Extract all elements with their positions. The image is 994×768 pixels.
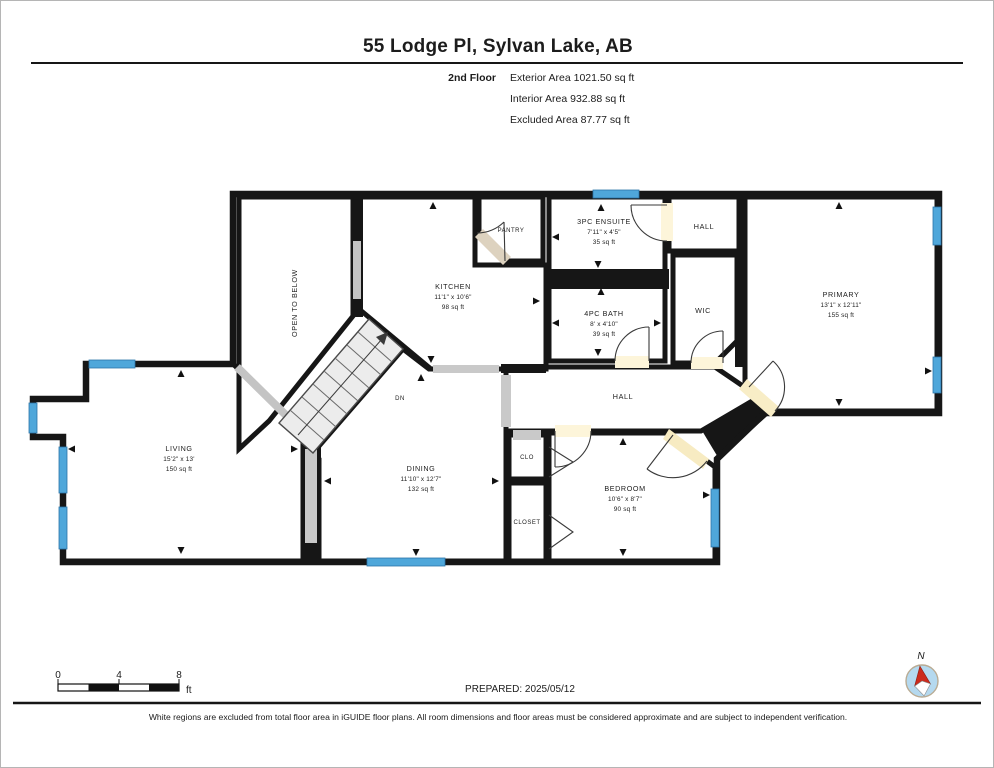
label-open-to-below: OPEN TO BELOW <box>290 269 299 337</box>
svg-text:155 sq ft: 155 sq ft <box>828 312 854 319</box>
svg-text:132 sq ft: 132 sq ft <box>408 486 434 493</box>
interior-area: Interior Area 932.88 sq ft <box>510 93 625 105</box>
label-hall-upper: HALL <box>694 222 714 231</box>
svg-text:90 sq ft: 90 sq ft <box>614 506 637 513</box>
page-title: 55 Lodge Pl, Sylvan Lake, AB <box>363 36 633 57</box>
prepared-date: PREPARED: 2025/05/12 <box>465 684 575 695</box>
scale-unit: ft <box>186 685 192 696</box>
svg-text:35 sq ft: 35 sq ft <box>593 239 616 246</box>
compass-n-label: N <box>917 651 925 662</box>
label-closet: CLOSET <box>513 520 540 526</box>
label-bedroom: BEDROOM <box>604 484 645 493</box>
label-living: LIVING <box>165 444 192 453</box>
svg-text:39 sq ft: 39 sq ft <box>593 331 616 338</box>
svg-text:11'10" x 12'7": 11'10" x 12'7" <box>401 476 442 483</box>
door-bath <box>615 327 649 361</box>
floor-plan: OPEN TO BELOW KITCHEN 11'1" x 10'6" 98 s… <box>29 190 941 566</box>
exterior-wall <box>33 194 939 562</box>
label-bath: 4PC BATH <box>584 309 623 318</box>
svg-text:98 sq ft: 98 sq ft <box>442 304 465 311</box>
label-ensuite: 3PC ENSUITE <box>577 217 631 226</box>
label-wic: WIC <box>695 306 711 315</box>
label-hall: HALL <box>613 392 633 401</box>
disclaimer: White regions are excluded from total fl… <box>149 712 847 722</box>
closet-bifold-2 <box>549 515 573 549</box>
floorplan-page: 55 Lodge Pl, Sylvan Lake, AB 2nd Floor E… <box>0 0 994 768</box>
excluded-area: Excluded Area 87.77 sq ft <box>510 114 630 126</box>
svg-text:15'2" x 13': 15'2" x 13' <box>163 456 194 463</box>
label-pantry: PANTRY <box>498 228 525 234</box>
exterior-area: Exterior Area 1021.50 sq ft <box>510 72 634 84</box>
closet-bifold-1 <box>549 447 573 477</box>
label-dn: DN <box>395 396 405 402</box>
label-kitchen: KITCHEN <box>435 282 471 291</box>
floorplan-canvas: 55 Lodge Pl, Sylvan Lake, AB 2nd Floor E… <box>1 1 993 767</box>
label-primary: PRIMARY <box>823 290 860 299</box>
label-dining: DINING <box>407 464 436 473</box>
footer: 0 4 8 ft PREPARED: 2025/05/12 N White re… <box>13 651 981 722</box>
label-clo: CLO <box>520 455 534 461</box>
svg-text:8' x 4'10": 8' x 4'10" <box>590 321 618 328</box>
compass: N <box>906 651 938 697</box>
scale-bar: 0 4 8 ft <box>55 670 192 696</box>
svg-text:11'1" x 10'6": 11'1" x 10'6" <box>434 294 471 301</box>
floor-label: 2nd Floor <box>448 72 496 84</box>
header: 55 Lodge Pl, Sylvan Lake, AB 2nd Floor E… <box>31 36 963 126</box>
svg-text:150 sq ft: 150 sq ft <box>166 466 192 473</box>
svg-text:10'6" x 8'7": 10'6" x 8'7" <box>608 496 642 503</box>
svg-text:7'11" x 4'5": 7'11" x 4'5" <box>587 229 620 236</box>
svg-text:13'1" x 12'11": 13'1" x 12'11" <box>821 302 862 309</box>
